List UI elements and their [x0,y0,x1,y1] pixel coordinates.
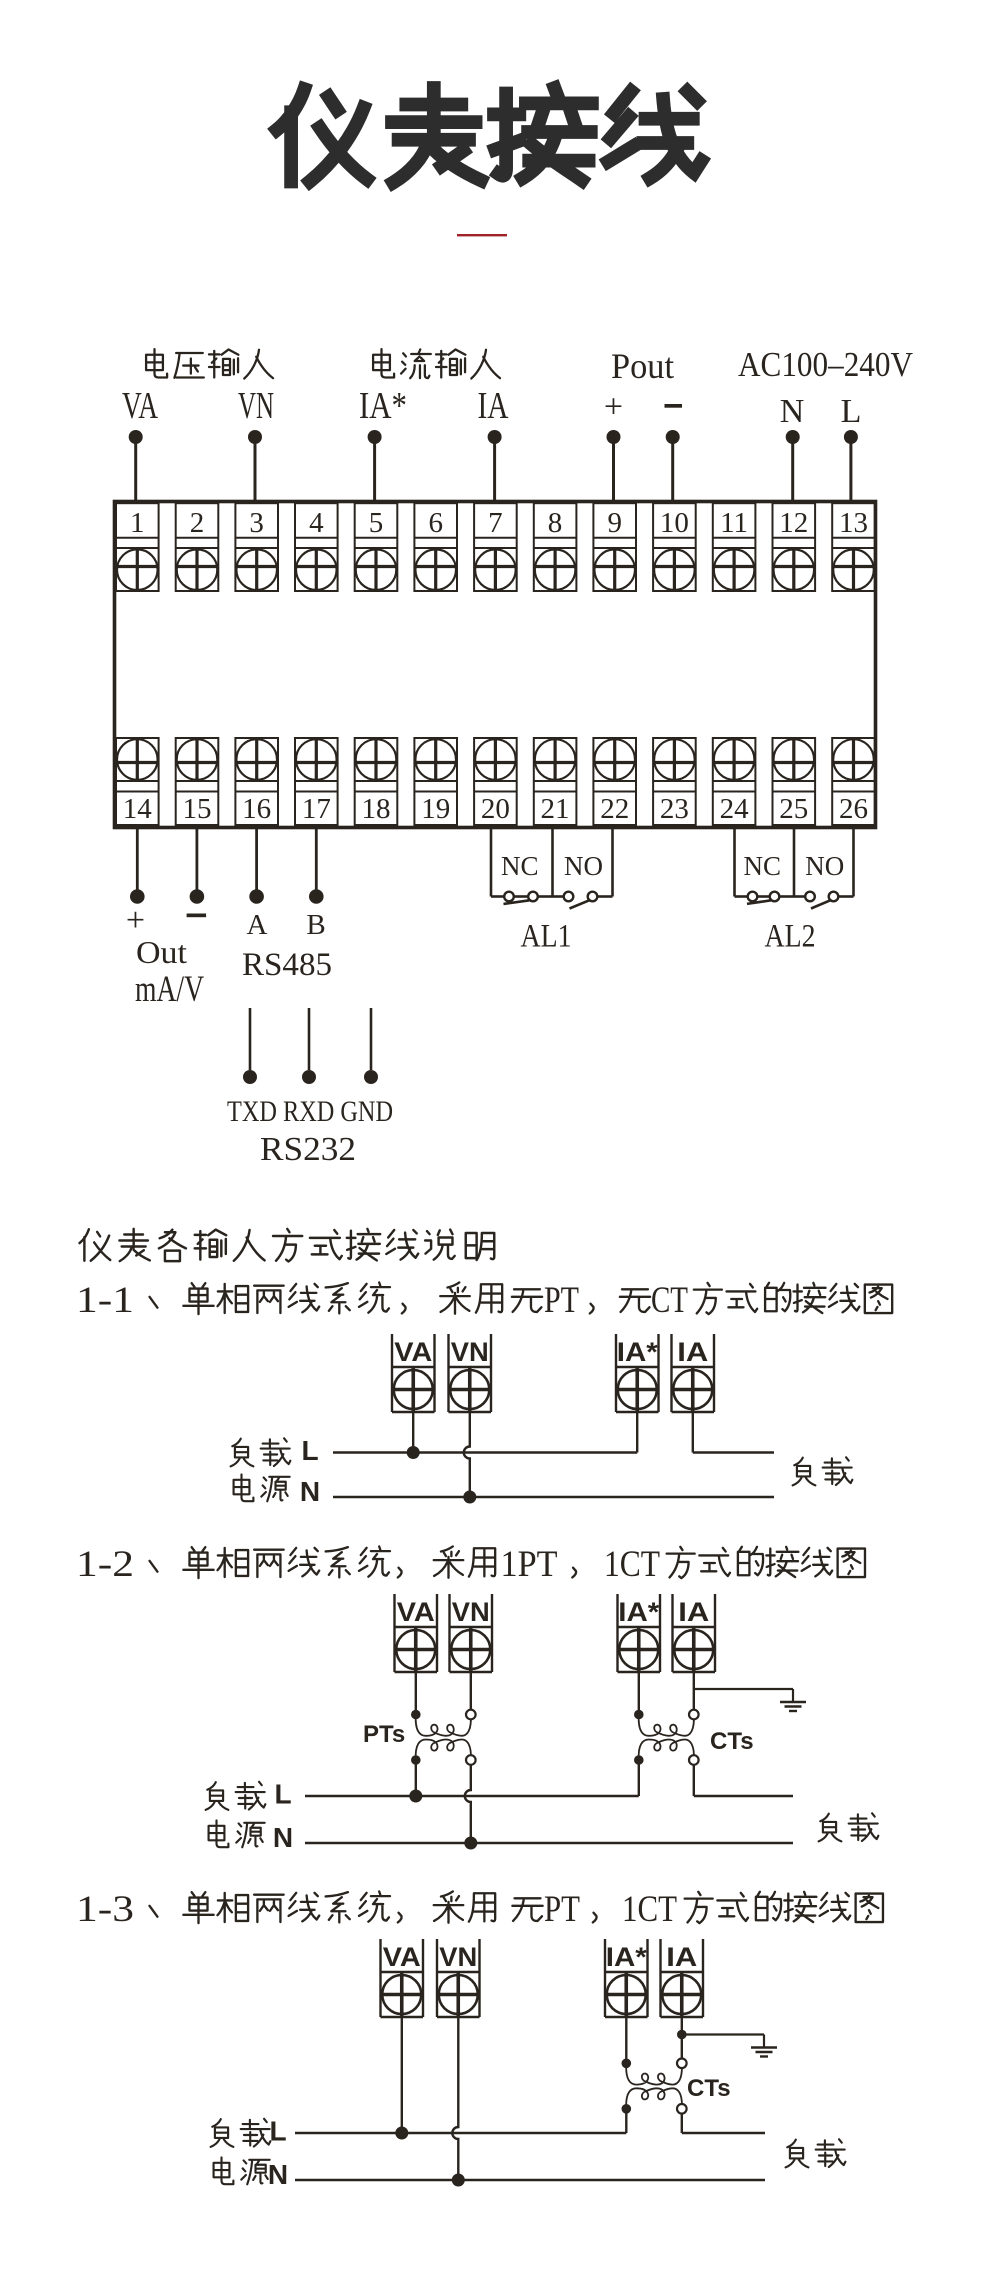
svg-text:VN: VN [238,385,274,427]
svg-text:IA: IA [678,1597,709,1627]
svg-text:B: B [306,909,325,941]
svg-text:8: 8 [548,507,563,539]
svg-text:1-1: 1-1 [76,1280,134,1321]
svg-text:Pout: Pout [611,346,674,386]
svg-text:NC: NC [501,851,539,881]
svg-text:mA/V: mA/V [135,969,204,1010]
svg-text:AL1: AL1 [521,919,572,955]
svg-text:IA: IA [677,1337,708,1367]
svg-text:14: 14 [123,793,153,825]
svg-text:6: 6 [428,507,443,539]
svg-text:3: 3 [249,507,264,539]
svg-text:5: 5 [369,507,384,539]
svg-text:TXD RXD GND: TXD RXD GND [227,1095,393,1128]
svg-text:1CT: 1CT [622,1889,677,1930]
svg-text:RS485: RS485 [242,947,332,983]
svg-text:16: 16 [242,793,271,825]
svg-text:24: 24 [720,793,750,825]
svg-text:21: 21 [541,793,570,825]
svg-text:1CT: 1CT [604,1544,660,1585]
svg-text:25: 25 [779,793,808,825]
svg-text:2: 2 [190,507,205,539]
svg-text:7: 7 [488,507,503,539]
svg-text:1: 1 [130,507,145,539]
svg-text:IA: IA [666,1942,697,1972]
svg-text:IA*: IA* [606,1942,648,1972]
svg-text:1-3: 1-3 [76,1889,134,1930]
svg-text:NO: NO [805,851,844,881]
svg-text:NC: NC [743,851,781,881]
svg-text:15: 15 [182,793,211,825]
svg-text:17: 17 [302,793,331,825]
svg-text:IA: IA [478,385,509,427]
svg-text:Out: Out [136,934,187,970]
svg-text:VA: VA [122,385,158,427]
svg-text:VA: VA [383,1942,421,1972]
svg-text:PT: PT [544,1889,580,1930]
svg-text:4: 4 [309,507,324,539]
svg-text:L: L [274,1779,291,1810]
svg-text:1-2: 1-2 [76,1544,134,1585]
svg-text:VN: VN [439,1942,477,1972]
svg-text:CTs: CTs [687,2075,731,2102]
svg-text:RS232: RS232 [260,1131,356,1168]
svg-text:+: + [604,389,623,426]
svg-text:L: L [269,2116,286,2147]
svg-text:AC100–240V: AC100–240V [738,345,913,384]
svg-text:L: L [841,393,862,430]
svg-text:VN: VN [451,1337,489,1367]
svg-text:1PT: 1PT [501,1544,558,1585]
svg-text:N: N [268,2159,288,2190]
svg-text:PTs: PTs [363,1721,405,1748]
svg-text:N: N [780,393,805,430]
svg-text:10: 10 [660,507,689,539]
svg-text:L: L [301,1435,318,1466]
svg-text:26: 26 [839,793,868,825]
svg-text:18: 18 [362,793,391,825]
svg-text:12: 12 [779,507,808,539]
svg-text:A: A [247,909,268,941]
svg-text:CT: CT [651,1280,688,1321]
svg-text:PT: PT [544,1280,579,1321]
svg-text:N: N [273,1822,293,1853]
svg-text:N: N [300,1476,320,1507]
svg-text:20: 20 [481,793,510,825]
svg-text:23: 23 [660,793,689,825]
svg-text:19: 19 [421,793,450,825]
svg-text:VA: VA [397,1597,435,1627]
svg-text:13: 13 [839,507,868,539]
svg-text:11: 11 [720,507,748,539]
svg-text:IA*: IA* [359,385,407,427]
svg-text:AL2: AL2 [765,919,816,955]
svg-text:IA*: IA* [617,1337,659,1367]
svg-text:CTs: CTs [710,1728,754,1755]
svg-text:22: 22 [600,793,629,825]
svg-text:NO: NO [564,851,603,881]
svg-text:VA: VA [394,1337,432,1367]
svg-text:IA*: IA* [618,1597,660,1627]
svg-text:VN: VN [452,1597,490,1627]
svg-text:9: 9 [607,507,622,539]
